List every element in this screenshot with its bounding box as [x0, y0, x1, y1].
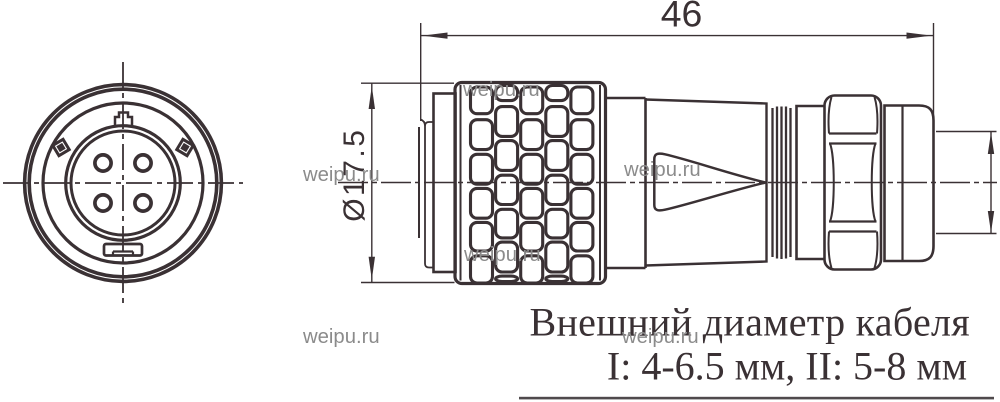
svg-text:weipu.ru: weipu.ru [302, 164, 380, 186]
svg-text:weipu.ru: weipu.ru [623, 159, 701, 181]
svg-text:weipu.ru: weipu.ru [462, 79, 540, 101]
svg-text:weipu.ru: weipu.ru [302, 326, 380, 348]
svg-text:weipu.ru: weipu.ru [621, 326, 699, 348]
svg-text:weipu.ru: weipu.ru [463, 244, 541, 266]
svg-text:46: 46 [661, 0, 703, 35]
svg-text:Внешний диаметр кабеля: Внешний диаметр кабеля [529, 300, 970, 345]
svg-text:I: 4-6.5 мм, II: 5-8 мм: I: 4-6.5 мм, II: 5-8 мм [607, 344, 967, 389]
